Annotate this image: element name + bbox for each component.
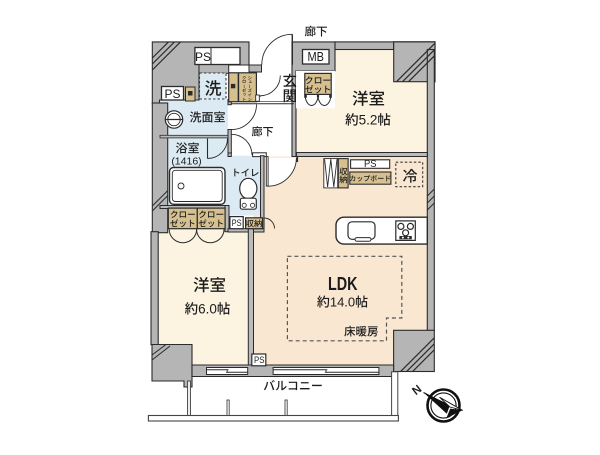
- svg-text:トイレ: トイレ: [231, 165, 259, 179]
- svg-text:床暖房: 床暖房: [344, 324, 379, 340]
- svg-text:バルコニー: バルコニー: [263, 377, 323, 394]
- svg-text:約6.0帖: 約6.0帖: [185, 297, 231, 317]
- svg-text:洗面室: 洗面室: [189, 109, 225, 126]
- svg-text:PS: PS: [254, 352, 265, 366]
- svg-text:洋室: 洋室: [352, 86, 385, 110]
- svg-text:PS: PS: [232, 215, 242, 229]
- svg-text:PS: PS: [195, 49, 211, 65]
- svg-text:洋室: 洋室: [193, 272, 226, 296]
- svg-text:MB: MB: [308, 46, 325, 65]
- svg-text:廊下: 廊下: [252, 124, 274, 140]
- svg-text:N: N: [408, 381, 424, 399]
- svg-text:関: 関: [283, 85, 298, 106]
- svg-text:クローゼット: クローゼット: [241, 75, 247, 102]
- svg-text:ゼット: ゼット: [170, 218, 196, 230]
- svg-text:シューズイン: シューズイン: [247, 75, 253, 102]
- svg-text:収納: 収納: [337, 166, 349, 184]
- svg-text:(1416): (1416): [171, 154, 201, 169]
- svg-text:冷: 冷: [402, 166, 417, 187]
- svg-text:ゼット: ゼット: [305, 83, 331, 96]
- svg-text:カップボード: カップボード: [349, 174, 391, 184]
- svg-text:廊下: 廊下: [305, 24, 328, 40]
- svg-text:収納: 収納: [246, 217, 262, 229]
- svg-text:約5.2帖: 約5.2帖: [345, 109, 391, 129]
- svg-text:ゼット: ゼット: [198, 218, 224, 230]
- svg-text:PS: PS: [165, 86, 181, 102]
- svg-text:洗: 洗: [205, 75, 222, 100]
- svg-text:約14.0帖: 約14.0帖: [317, 291, 368, 310]
- svg-text:PS: PS: [364, 156, 377, 170]
